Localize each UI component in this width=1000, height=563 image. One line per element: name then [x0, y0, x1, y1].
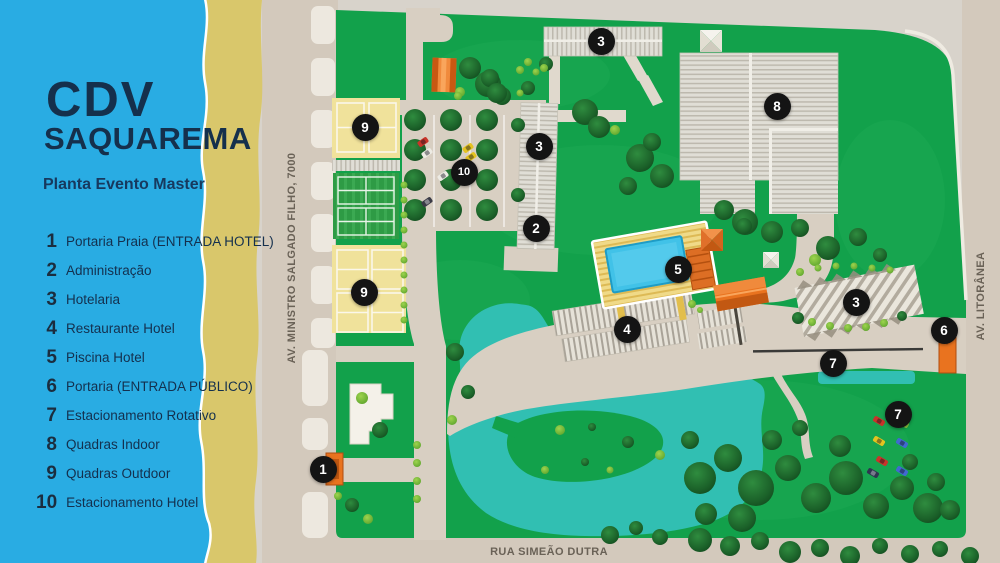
hotelaria-north-building — [544, 27, 662, 56]
street-rua-simeao — [262, 538, 1000, 563]
water-channel — [818, 371, 915, 384]
map-svg — [0, 0, 1000, 563]
gate-public-entrance — [939, 333, 956, 373]
courts-divider-strip — [332, 160, 400, 171]
orange-building-northwest — [431, 58, 456, 93]
orange-kiosk-pyramid — [701, 229, 723, 251]
gate-hotel-entrance — [326, 453, 343, 485]
site-map-screen: CDV SAQUAREMA Planta Evento Master 1Port… — [0, 0, 1000, 563]
info-panel-bg — [0, 0, 209, 563]
tennis-courts — [333, 173, 399, 239]
white-kiosk-pyramid — [763, 252, 779, 268]
street-av-litoranea — [962, 0, 1000, 563]
roof-skylight-pyramid — [700, 30, 722, 52]
courts-yellow-north — [332, 98, 400, 158]
courts-yellow-south — [332, 245, 406, 333]
